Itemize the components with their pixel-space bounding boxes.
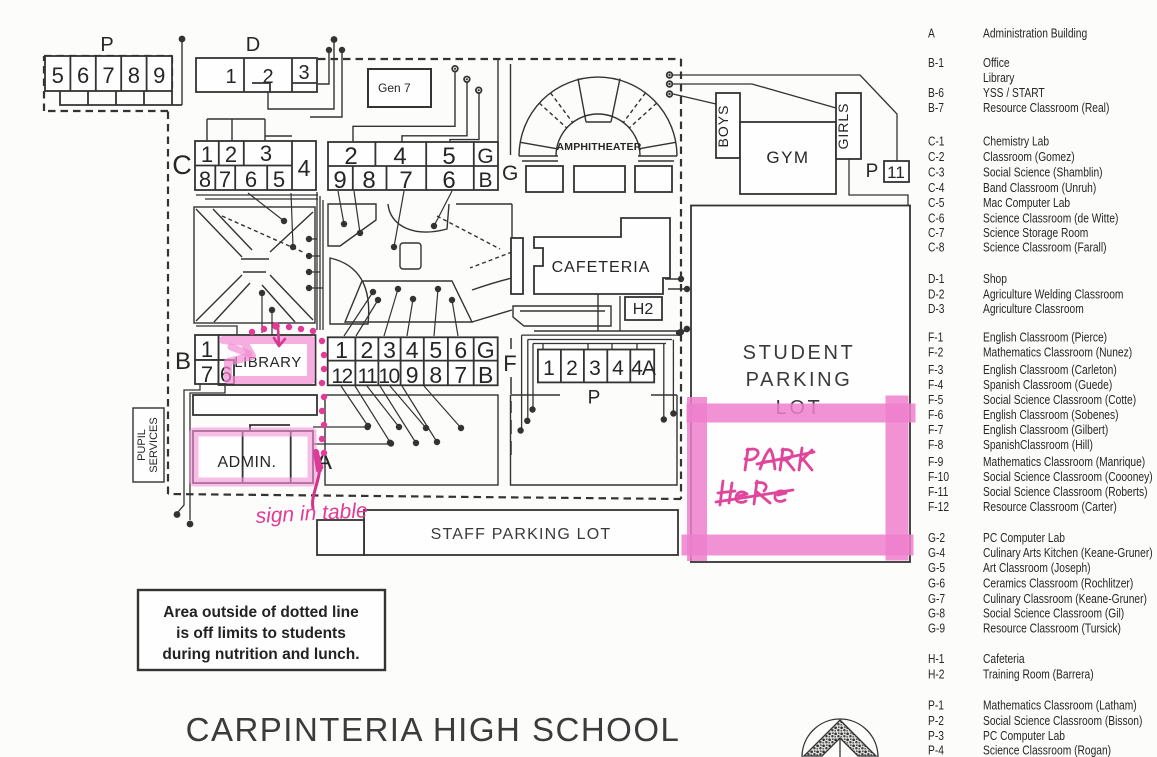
svg-text:Administration Building: Administration Building <box>983 28 1087 41</box>
svg-text:D-3: D-3 <box>928 303 945 316</box>
svg-text:Social Science Classroom (Gil): Social Science Classroom (Gil) <box>983 608 1124 621</box>
svg-text:Resource Classroom (Tursick): Resource Classroom (Tursick) <box>983 623 1121 636</box>
svg-text:3: 3 <box>589 357 601 380</box>
svg-text:STAFF PARKING LOT: STAFF PARKING LOT <box>431 526 612 543</box>
svg-text:F-6: F-6 <box>928 409 943 422</box>
svg-text:P-4: P-4 <box>928 745 945 757</box>
svg-text:11: 11 <box>357 365 377 388</box>
svg-text:F-9: F-9 <box>928 456 943 469</box>
svg-text:Culinary Arts Kitchen (Keane-G: Culinary Arts Kitchen (Keane-Gruner) <box>983 547 1153 560</box>
svg-text:Mathematics Classroom (Manriqu: Mathematics Classroom (Manrique) <box>983 456 1145 469</box>
svg-text:8: 8 <box>199 167 211 192</box>
svg-text:P-1: P-1 <box>928 700 944 713</box>
svg-text:5: 5 <box>442 143 455 170</box>
svg-text:Mathematics Classroom (Nunez): Mathematics Classroom (Nunez) <box>983 347 1132 360</box>
svg-text:Classroom (Gomez): Classroom (Gomez) <box>983 151 1075 164</box>
svg-text:English Classroom (Sobenes): English Classroom (Sobenes) <box>983 409 1119 422</box>
svg-text:Office: Office <box>983 57 1010 70</box>
svg-text:5: 5 <box>429 337 442 363</box>
svg-text:6: 6 <box>245 167 257 192</box>
svg-text:1: 1 <box>543 357 555 380</box>
svg-text:F-11: F-11 <box>928 486 948 499</box>
svg-text:F-5: F-5 <box>928 394 943 407</box>
svg-text:4: 4 <box>406 337 419 363</box>
svg-text:Resource Classroom (Carter): Resource Classroom (Carter) <box>983 501 1117 514</box>
svg-text:Training Room (Barrera): Training Room (Barrera) <box>983 669 1094 682</box>
svg-text:is off limits to students: is off limits to students <box>176 625 346 642</box>
svg-text:BOYS: BOYS <box>715 105 731 148</box>
svg-text:PC Computer Lab: PC Computer Lab <box>983 532 1065 545</box>
svg-text:Agriculture Welding Classroom: Agriculture Welding Classroom <box>983 289 1123 302</box>
svg-text:8: 8 <box>128 63 140 88</box>
svg-text:Social Science Classroom (Cooo: Social Science Classroom (Coooney) <box>983 471 1153 484</box>
svg-text:Culinary Classroom (Keane-Grun: Culinary Classroom (Keane-Gruner) <box>983 593 1147 606</box>
svg-text:1: 1 <box>335 337 348 363</box>
svg-text:F: F <box>503 351 516 376</box>
svg-text:G-9: G-9 <box>928 623 945 636</box>
svg-text:1: 1 <box>201 142 213 167</box>
svg-text:Science Storage Room: Science Storage Room <box>983 227 1088 240</box>
svg-text:B: B <box>478 169 492 192</box>
svg-text:during nutrition and lunch.: during nutrition and lunch. <box>162 646 359 663</box>
svg-text:B: B <box>478 362 493 388</box>
svg-text:P: P <box>100 34 113 56</box>
svg-text:H-1: H-1 <box>928 653 945 666</box>
svg-text:Chemistry Lab: Chemistry Lab <box>983 136 1049 149</box>
svg-text:PUPIL: PUPIL <box>136 429 148 461</box>
svg-text:Library: Library <box>983 72 1015 85</box>
svg-text:STUDENT: STUDENT <box>743 342 856 364</box>
svg-text:F-12: F-12 <box>928 501 949 514</box>
svg-text:3: 3 <box>260 141 272 166</box>
svg-text:Mac Computer Lab: Mac Computer Lab <box>983 197 1070 210</box>
svg-text:2: 2 <box>262 66 273 88</box>
svg-text:6: 6 <box>77 63 89 88</box>
svg-text:4A: 4A <box>631 357 656 380</box>
svg-text:P-2: P-2 <box>928 715 944 728</box>
svg-text:6: 6 <box>454 337 467 363</box>
svg-text:4: 4 <box>612 357 624 380</box>
svg-text:G-5: G-5 <box>928 562 945 575</box>
svg-text:9: 9 <box>153 63 165 88</box>
svg-text:H-2: H-2 <box>928 669 945 682</box>
svg-text:G: G <box>502 162 518 185</box>
svg-text:D-1: D-1 <box>928 273 945 286</box>
svg-text:B-6: B-6 <box>928 87 944 100</box>
svg-text:F-3: F-3 <box>928 364 943 377</box>
svg-text:11: 11 <box>887 163 905 182</box>
svg-text:8: 8 <box>429 362 442 388</box>
svg-text:C: C <box>172 150 192 180</box>
svg-text:F-4: F-4 <box>928 379 944 392</box>
svg-text:7: 7 <box>102 63 114 88</box>
svg-text:12: 12 <box>331 365 352 388</box>
svg-text:2: 2 <box>361 337 374 363</box>
svg-text:F-10: F-10 <box>928 471 949 484</box>
svg-text:G-4: G-4 <box>928 547 946 560</box>
svg-text:Area outside of dotted line: Area outside of dotted line <box>163 604 359 621</box>
svg-text:Science Classroom (Farall): Science Classroom (Farall) <box>983 242 1107 255</box>
svg-text:Social Science Classroom (Cott: Social Science Classroom (Cotte) <box>983 394 1136 407</box>
svg-text:F-7: F-7 <box>928 424 943 437</box>
svg-text:7: 7 <box>399 167 412 194</box>
svg-text:P-3: P-3 <box>928 730 944 743</box>
svg-text:G-7: G-7 <box>928 593 945 606</box>
svg-text:5: 5 <box>52 63 64 88</box>
svg-text:C-8: C-8 <box>928 242 945 255</box>
svg-text:Resource Classroom (Real): Resource Classroom (Real) <box>983 102 1110 115</box>
svg-text:GIRLS: GIRLS <box>835 102 851 149</box>
svg-text:3: 3 <box>298 62 309 84</box>
svg-text:G: G <box>477 337 495 363</box>
svg-text:CAFETERIA: CAFETERIA <box>552 259 651 276</box>
svg-text:English Classroom (Carleton): English Classroom (Carleton) <box>983 364 1117 377</box>
svg-text:H2: H2 <box>633 301 654 318</box>
svg-text:Social Science (Shamblin): Social Science (Shamblin) <box>983 167 1103 180</box>
svg-text:YSS / START: YSS / START <box>983 87 1045 100</box>
svg-text:3: 3 <box>383 337 396 363</box>
svg-text:8: 8 <box>362 167 375 194</box>
svg-text:Mathematics Classroom (Latham): Mathematics Classroom (Latham) <box>983 700 1137 713</box>
svg-text:10: 10 <box>378 365 399 388</box>
svg-text:C-2: C-2 <box>928 151 945 164</box>
svg-text:G-6: G-6 <box>928 578 945 591</box>
svg-text:7: 7 <box>454 362 467 388</box>
svg-text:P: P <box>588 388 601 409</box>
svg-text:5: 5 <box>273 167 285 192</box>
svg-text:ADMIN.: ADMIN. <box>218 454 277 471</box>
svg-text:1: 1 <box>225 66 236 88</box>
svg-text:2: 2 <box>566 357 578 380</box>
svg-text:Science Classroom (de Witte): Science Classroom (de Witte) <box>983 213 1119 226</box>
svg-text:B-7: B-7 <box>928 102 944 115</box>
svg-text:D: D <box>246 34 260 56</box>
svg-text:PARKING: PARKING <box>746 369 853 391</box>
svg-text:CARPINTERIA HIGH SCHOOL: CARPINTERIA HIGH SCHOOL <box>186 711 681 748</box>
svg-text:B-1: B-1 <box>928 57 944 70</box>
svg-text:C-6: C-6 <box>928 213 945 226</box>
svg-text:C-3: C-3 <box>928 167 945 180</box>
svg-text:English Classroom (Gilbert): English Classroom (Gilbert) <box>983 424 1108 437</box>
svg-text:F-2: F-2 <box>928 347 943 360</box>
svg-text:English Classroom (Pierce): English Classroom (Pierce) <box>983 332 1107 345</box>
svg-text:Spanish Classroom (Guede): Spanish Classroom (Guede) <box>983 379 1112 392</box>
svg-text:P: P <box>866 161 879 182</box>
svg-text:Agriculture Classroom: Agriculture Classroom <box>983 303 1084 316</box>
svg-text:C-7: C-7 <box>928 227 945 240</box>
svg-text:Shop: Shop <box>983 273 1007 286</box>
svg-text:F-1: F-1 <box>928 332 943 345</box>
svg-text:SERVICES: SERVICES <box>148 417 160 472</box>
svg-text:AMPHITHEATER: AMPHITHEATER <box>556 141 641 153</box>
svg-text:Ceramics Classroom (Rochlitzer: Ceramics Classroom (Rochlitzer) <box>983 578 1133 591</box>
svg-text:GYM: GYM <box>766 148 809 167</box>
svg-text:4: 4 <box>393 143 406 170</box>
svg-text:G-8: G-8 <box>928 608 945 621</box>
svg-text:G: G <box>477 145 493 168</box>
svg-text:Social Science Classroom (Robe: Social Science Classroom (Roberts) <box>983 486 1148 499</box>
svg-text:Gen 7: Gen 7 <box>378 81 411 95</box>
svg-text:C-1: C-1 <box>928 136 945 149</box>
svg-text:G-2: G-2 <box>928 532 945 545</box>
svg-text:7: 7 <box>201 362 213 387</box>
svg-text:SpanishClassroom (Hill): SpanishClassroom (Hill) <box>983 439 1093 452</box>
svg-text:C-5: C-5 <box>928 197 945 210</box>
svg-text:7: 7 <box>219 167 231 192</box>
svg-text:Cafeteria: Cafeteria <box>983 653 1025 666</box>
svg-text:F-8: F-8 <box>928 439 943 452</box>
svg-text:Band Classroom (Unruh): Band Classroom (Unruh) <box>983 182 1096 195</box>
svg-text:9: 9 <box>333 167 346 194</box>
svg-text:6: 6 <box>442 167 455 194</box>
svg-text:4: 4 <box>298 155 311 181</box>
svg-text:B: B <box>175 348 191 375</box>
svg-text:2: 2 <box>225 142 237 167</box>
svg-text:Art Classroom (Joseph): Art Classroom (Joseph) <box>983 562 1091 575</box>
svg-text:C-4: C-4 <box>928 182 945 195</box>
svg-text:D-2: D-2 <box>928 289 945 302</box>
svg-text:Science Classroom (Rogan): Science Classroom (Rogan) <box>983 745 1111 757</box>
svg-text:1: 1 <box>201 337 213 362</box>
svg-text:9: 9 <box>406 362 419 388</box>
svg-text:A: A <box>928 28 935 41</box>
svg-text:2: 2 <box>344 143 357 170</box>
svg-text:PC Computer Lab: PC Computer Lab <box>983 730 1065 743</box>
svg-text:Social Science Classroom (Biss: Social Science Classroom (Bisson) <box>983 715 1143 728</box>
